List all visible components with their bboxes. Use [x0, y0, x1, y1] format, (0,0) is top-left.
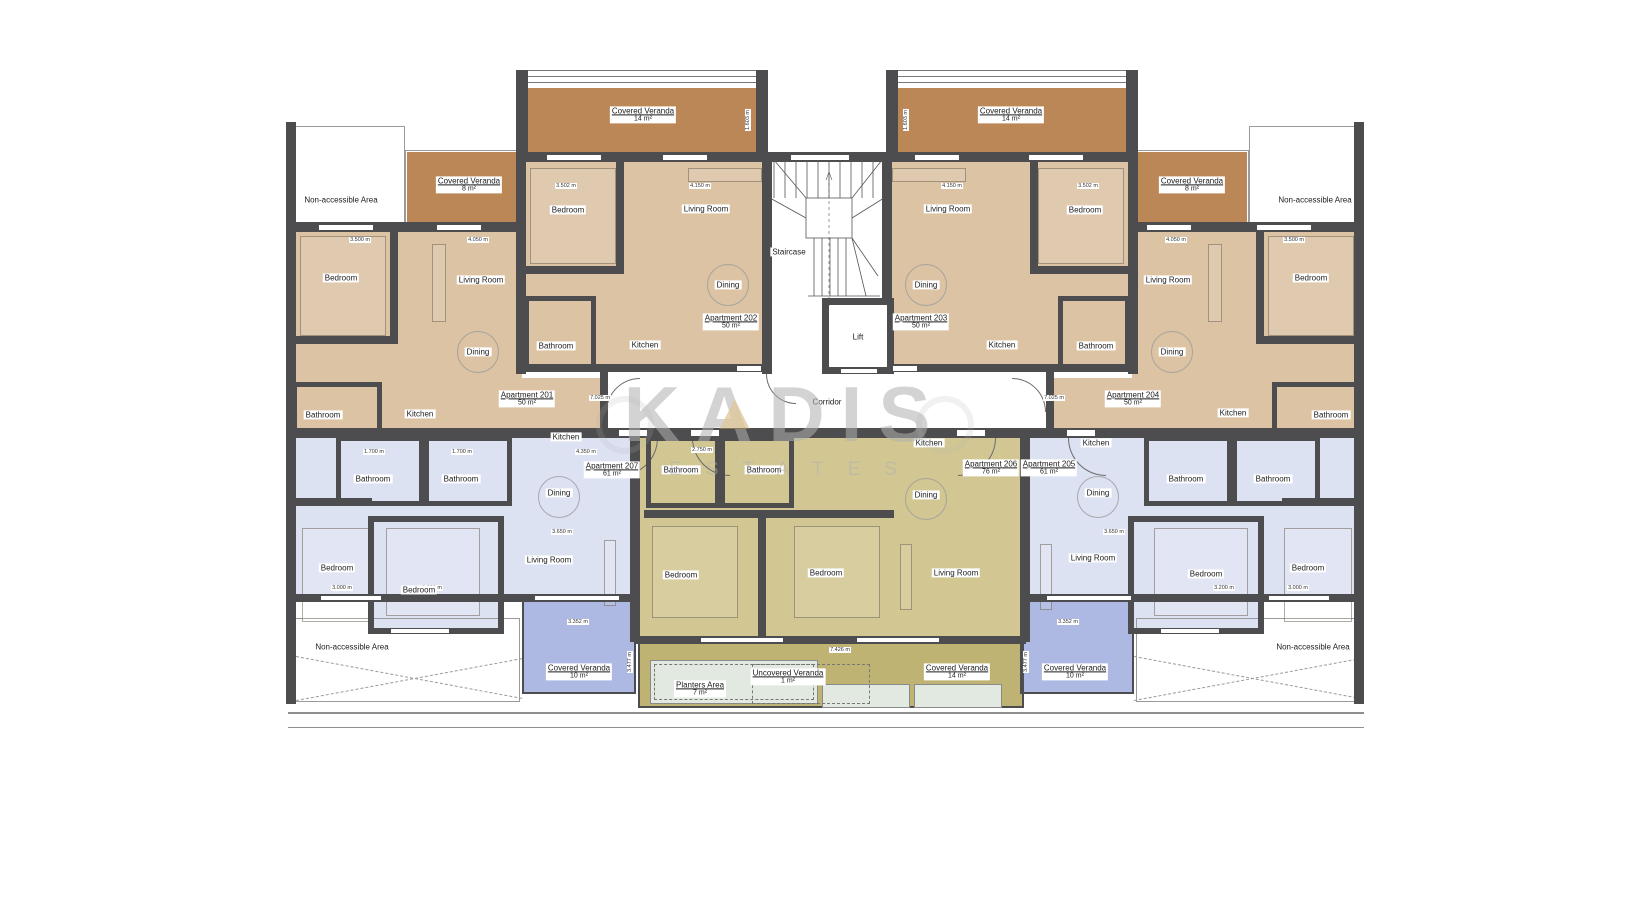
apt207-kitchen: Kitchen	[551, 432, 582, 441]
veranda-label-right-8: Covered Veranda8 m²	[1159, 176, 1225, 193]
wall-box	[292, 382, 382, 434]
wall	[1030, 266, 1130, 274]
window-opening	[1028, 154, 1084, 161]
wall-box	[368, 516, 504, 634]
dimension-label: 4.050 m	[467, 237, 489, 243]
apt204-dining: Dining	[1159, 347, 1186, 356]
veranda-label-bottom-right-10: Covered Veranda10 m²	[1042, 663, 1108, 680]
apt207-bathroom-2: Bathroom	[442, 474, 481, 483]
wall	[616, 162, 624, 272]
apt203-living-room: Living Room	[924, 204, 972, 213]
planter-box	[914, 684, 1002, 708]
apt205-living-room: Living Room	[1069, 553, 1117, 562]
apt207-living-room: Living Room	[525, 555, 573, 564]
apt206-bathroom-2: Bathroom	[745, 465, 784, 474]
floor-plan: Covered Veranda14 m²Covered Veranda14 m²…	[0, 0, 1630, 924]
door-swing-arc	[1012, 378, 1046, 412]
apt203-dining: Dining	[913, 280, 940, 289]
lift-label: Lift	[851, 332, 866, 341]
sofa	[688, 168, 762, 182]
apt207-dining: Dining	[546, 488, 573, 497]
dimension-label: 4.350 m	[575, 449, 597, 455]
dimension-label: 3.502 m	[555, 183, 577, 189]
window-opening	[1160, 628, 1220, 634]
wall	[390, 228, 398, 344]
apt202-living-room: Living Room	[682, 204, 730, 213]
apt204-living-room: Living Room	[1144, 275, 1192, 284]
apt203-label: Apartment 20350 m²	[893, 313, 949, 330]
dimension-label: 4.150 m	[941, 183, 963, 189]
boundary-line	[288, 712, 1364, 714]
apt202-bathroom: Bathroom	[537, 341, 576, 350]
wall-box	[336, 436, 424, 506]
apt203-bedroom: Bedroom	[1067, 205, 1103, 214]
wall	[524, 266, 624, 274]
veranda-label-left-8: Covered Veranda8 m²	[436, 176, 502, 193]
dimension-label: 3.477 m	[627, 651, 633, 673]
dimension-label: 3.500 m	[1283, 237, 1305, 243]
dimension-label: 1.700 m	[451, 449, 473, 455]
apt205-bedroom-1: Bedroom	[1188, 569, 1224, 578]
wall-box	[1272, 382, 1362, 434]
sofa	[892, 168, 966, 182]
apt205-dining: Dining	[1085, 488, 1112, 497]
wall	[1030, 162, 1038, 272]
apt204-bathroom: Bathroom	[1312, 410, 1351, 419]
apt201-kitchen: Kitchen	[405, 409, 436, 418]
planters-area-label: Planters Area7 m²	[674, 680, 726, 697]
dimension-label: 3.200 m	[1213, 585, 1235, 591]
apt207-bathroom-1: Bathroom	[354, 474, 393, 483]
window-opening	[390, 628, 450, 634]
wall-box	[1058, 296, 1130, 370]
non-accessible-bottom-right: Non-accessible Area	[1274, 642, 1351, 651]
apt201-bedroom: Bedroom	[323, 273, 359, 282]
sofa	[432, 244, 446, 322]
window-opening	[1146, 224, 1192, 231]
bed	[1284, 528, 1352, 622]
railing-lines	[528, 70, 758, 86]
dimension-label: 7.426 m	[829, 647, 851, 653]
wall	[1126, 70, 1138, 162]
apt202-dining: Dining	[715, 280, 742, 289]
apt206-bathroom-1: Bathroom	[662, 465, 701, 474]
apt201-bathroom: Bathroom	[304, 410, 343, 419]
dimension-label: 4.150 m	[689, 183, 711, 189]
wall	[1256, 228, 1264, 344]
area-outline	[292, 126, 405, 224]
dimension-label: 7.025 m	[1043, 395, 1065, 401]
apt202-label: Apartment 20250 m²	[703, 313, 759, 330]
sofa	[1208, 244, 1222, 322]
sofa	[900, 544, 912, 610]
wall-box	[1232, 436, 1320, 506]
window-opening	[320, 595, 382, 601]
apt206-bedroom-2: Bedroom	[808, 568, 844, 577]
window-opening	[534, 595, 620, 601]
window-opening	[1046, 595, 1132, 601]
apt205-label: Apartment 20561 m²	[1021, 459, 1077, 476]
dimension-label: 1.603 m	[903, 109, 909, 131]
apt206-living-room: Living Room	[932, 568, 980, 577]
wall	[516, 70, 528, 162]
apt205-bathroom-1: Bathroom	[1167, 474, 1206, 483]
apt207-bedroom-2: Bedroom	[401, 585, 437, 594]
apt203-bathroom: Bathroom	[1077, 341, 1116, 350]
door-swing-arc	[766, 374, 796, 404]
bed	[1268, 236, 1354, 336]
dimension-label: 3.502 m	[1077, 183, 1099, 189]
apt205-bedroom-2: Bedroom	[1290, 563, 1326, 572]
wall-box	[524, 296, 596, 370]
wall	[296, 336, 398, 344]
dimension-label: 3.650 m	[1103, 529, 1125, 535]
dimension-label: 4.050 m	[1165, 237, 1187, 243]
apt207-label: Apartment 20761 m²	[584, 461, 640, 478]
wall	[886, 70, 898, 162]
dimension-label: 3.000 m	[1287, 585, 1309, 591]
uncovered-veranda-label: Uncovered Veranda1 m²	[751, 668, 826, 685]
watermark-ring-right	[916, 396, 974, 454]
apt205-bathroom-2: Bathroom	[1254, 474, 1293, 483]
veranda-label-top-right-14: Covered Veranda14 m²	[978, 106, 1044, 123]
dimension-label: 3.352 m	[1057, 619, 1079, 625]
boundary-line	[288, 727, 1364, 728]
bed	[300, 236, 386, 336]
wall	[644, 510, 894, 518]
veranda-label-bottom-14: Covered Veranda14 m²	[924, 663, 990, 680]
apt207-bedroom-1: Bedroom	[319, 563, 355, 572]
window-opening	[914, 154, 960, 161]
wall-box	[1144, 436, 1232, 506]
non-accessible-bottom-left: Non-accessible Area	[313, 642, 390, 651]
apt203-kitchen: Kitchen	[987, 340, 1018, 349]
apt202-kitchen: Kitchen	[630, 340, 661, 349]
apt206-bedroom-1: Bedroom	[663, 570, 699, 579]
dimension-label: 2.750 m	[691, 447, 713, 453]
window-opening	[1066, 429, 1096, 437]
window-opening	[736, 365, 762, 372]
apt202-bedroom: Bedroom	[550, 205, 586, 214]
apt206-label: Apartment 20676 m²	[963, 459, 1019, 476]
window-opening	[662, 154, 708, 161]
dimension-label: 3.000 m	[331, 585, 353, 591]
veranda-label-top-left-14: Covered Veranda14 m²	[610, 106, 676, 123]
dimension-label: 3.477 m	[1023, 651, 1029, 673]
railing-lines	[896, 70, 1126, 86]
window-opening	[700, 637, 784, 643]
wall	[636, 636, 1026, 644]
wall	[758, 518, 766, 644]
apt204-label: Apartment 20450 m²	[1105, 390, 1161, 407]
apt204-kitchen: Kitchen	[1218, 408, 1249, 417]
corridor-label: Corridor	[811, 397, 844, 406]
dimension-label: 1.700 m	[363, 449, 385, 455]
window-opening	[1256, 224, 1312, 231]
staircase-label: Staircase	[770, 247, 807, 256]
bed	[302, 528, 370, 622]
window-opening	[546, 154, 602, 161]
window-opening	[318, 224, 374, 231]
window-opening	[1268, 595, 1330, 601]
wall	[1256, 336, 1358, 344]
apt201-living-room: Living Room	[457, 275, 505, 284]
apt205-kitchen: Kitchen	[1081, 438, 1112, 447]
wall-box	[424, 436, 512, 506]
dimension-label: 1.603 m	[745, 109, 751, 131]
apt201-dining: Dining	[465, 347, 492, 356]
non-accessible-top-left: Non-accessible Area	[302, 195, 379, 204]
window-opening	[892, 365, 918, 372]
window-opening	[436, 224, 482, 231]
area-outline	[1249, 126, 1362, 224]
apt201-label: Apartment 20150 m²	[499, 390, 555, 407]
apt206-dining: Dining	[913, 490, 940, 499]
apt204-bedroom: Bedroom	[1293, 273, 1329, 282]
dimension-label: 3.352 m	[567, 619, 589, 625]
window-opening	[690, 429, 720, 437]
wall	[756, 70, 768, 162]
staircase-drawing	[768, 156, 886, 372]
veranda-label-bottom-left-10: Covered Veranda10 m²	[546, 663, 612, 680]
watermark-ring-left	[596, 396, 654, 454]
dimension-label: 3.650 m	[551, 529, 573, 535]
window-opening	[856, 637, 940, 643]
dimension-label: 3.500 m	[349, 237, 371, 243]
non-accessible-top-right: Non-accessible Area	[1276, 195, 1353, 204]
watermark-triangle-icon	[720, 399, 750, 429]
wall	[1046, 372, 1054, 434]
